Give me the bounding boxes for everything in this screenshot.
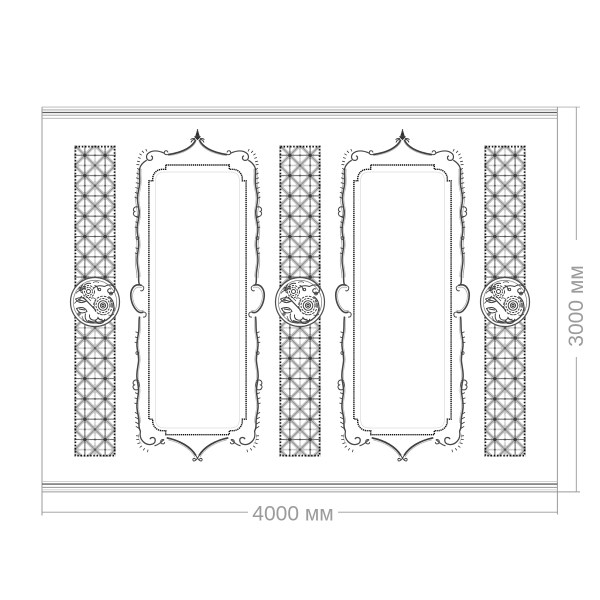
svg-text:4000 мм: 4000 мм — [252, 503, 333, 526]
svg-text:3000 мм: 3000 мм — [565, 265, 588, 346]
